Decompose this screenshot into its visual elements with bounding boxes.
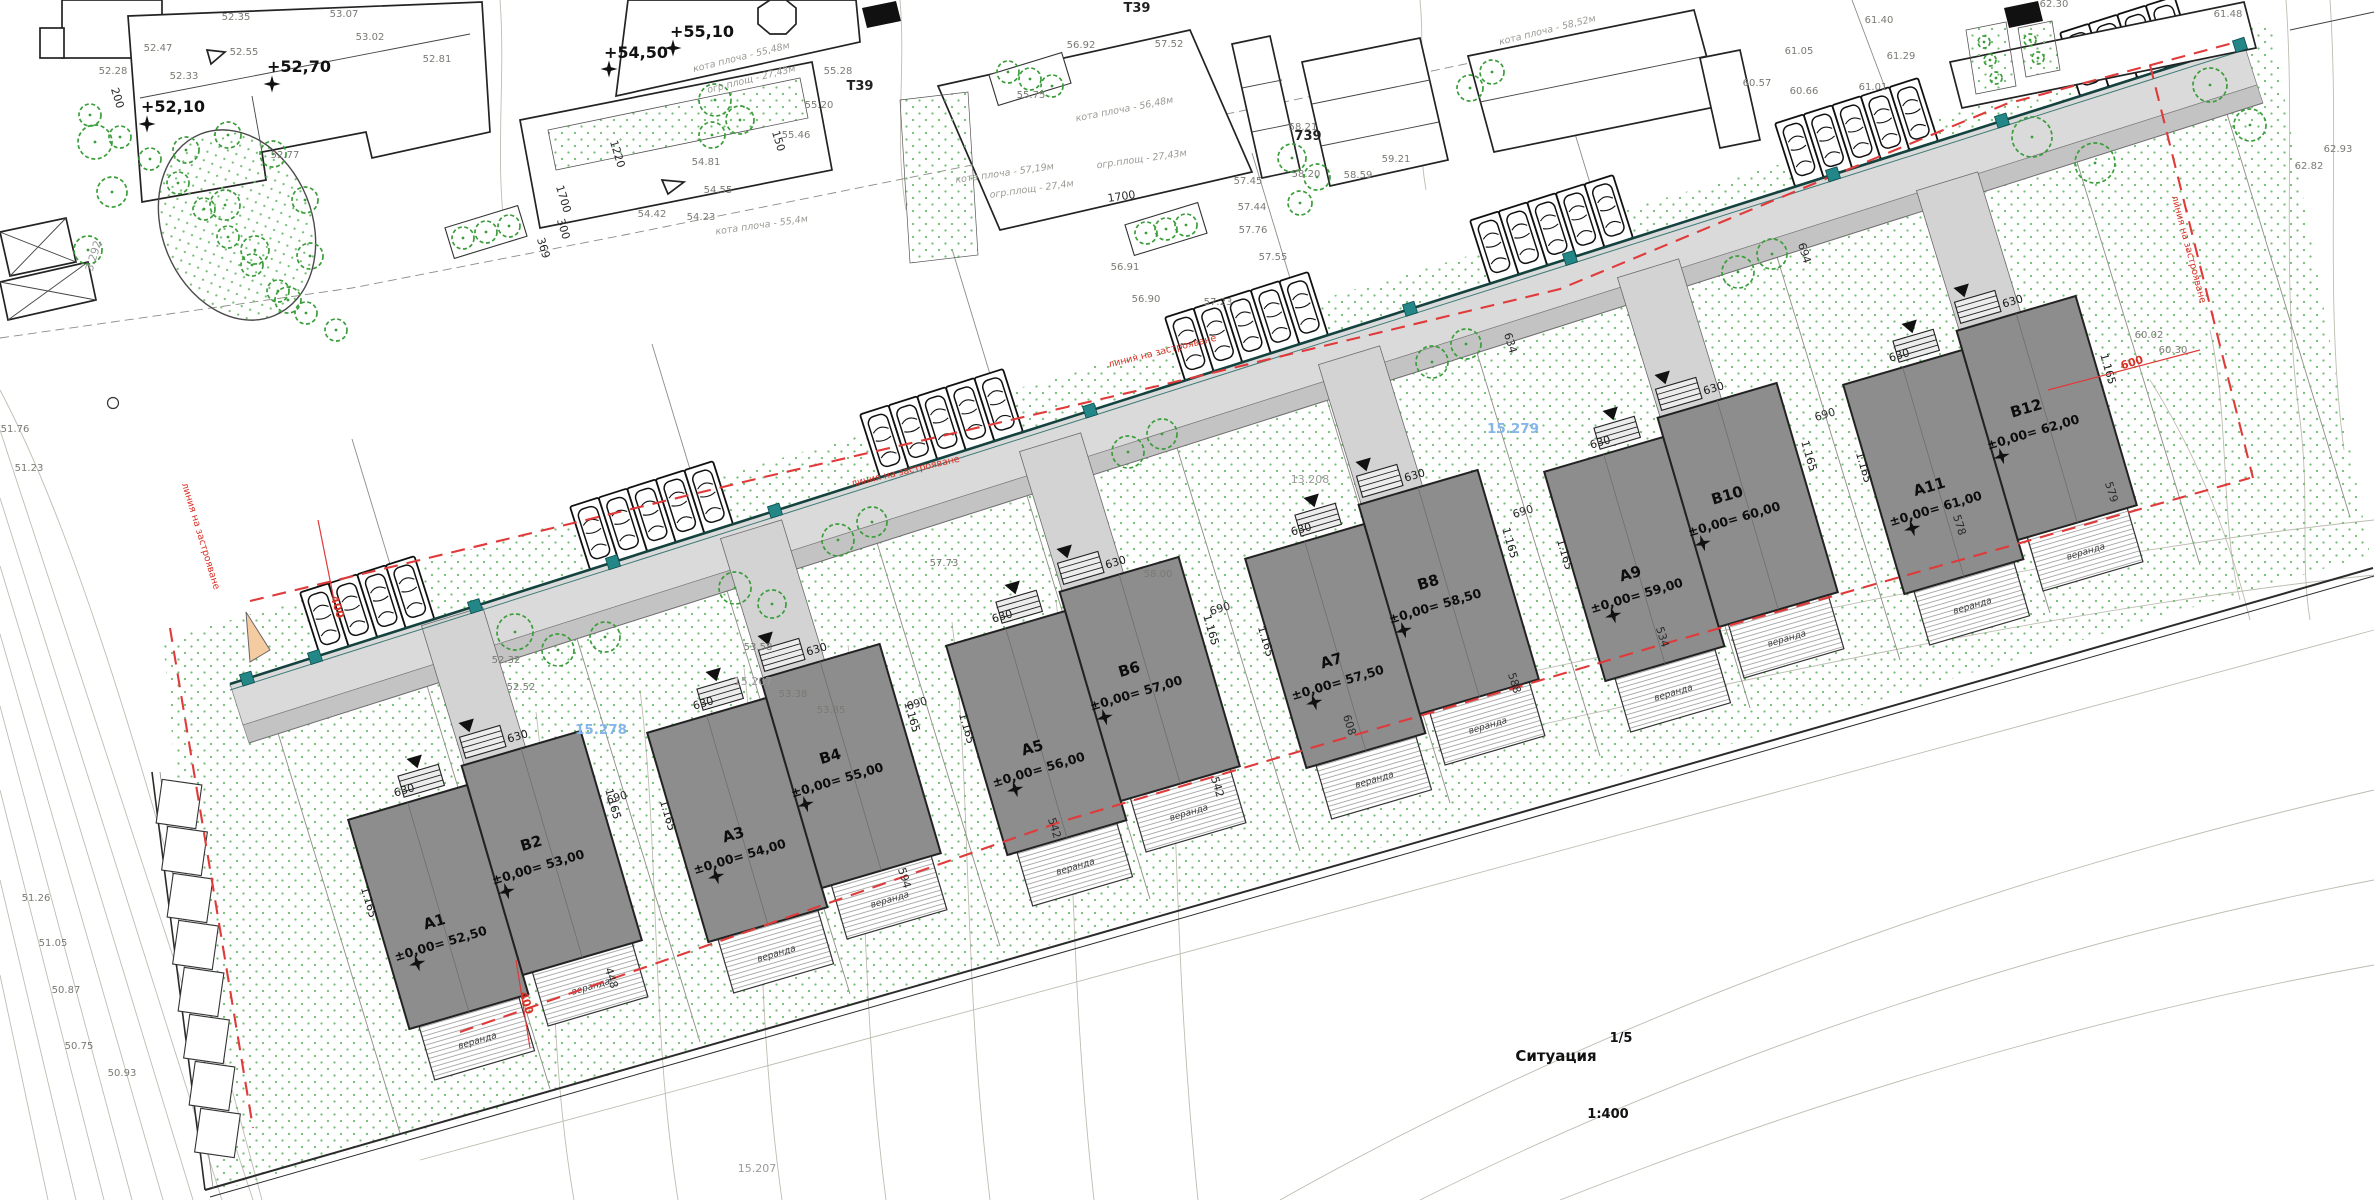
plan-label: 60.57 [1743,78,1772,89]
plan-label: Т39 [847,79,874,94]
plan-label: 54.55 [704,185,733,196]
tree-icon [295,302,317,324]
plan-label: +55,10 [670,22,734,41]
plan-label: 54.42 [638,209,667,220]
plan-label: 57.44 [1238,202,1267,213]
plan-label: 15.278 [575,722,627,738]
plan-label: 50.75 [65,1041,94,1052]
tree-icon [79,104,101,126]
benchmark-star-icon [601,61,618,78]
terrace-step [162,826,208,875]
plan-label: 52.32 [492,655,521,666]
plan-label: 52.55 [230,47,259,58]
plan-label: +52,10 [141,97,205,116]
plan-label: 53.58 [744,642,773,653]
plan-label: 61.05 [1785,46,1814,57]
plan-label: 62.93 [2324,144,2353,155]
plan-label: 62.30 [2040,0,2069,10]
plan-label: 3.292 [83,239,105,273]
plan-label: 59.21 [1382,154,1411,165]
tree-icon [1288,191,1312,215]
title-block: 1/5 Ситуация 1:400 [1515,1031,1632,1122]
plan-label: 51.23 [15,463,44,474]
plan-label: 61.48 [2214,9,2243,20]
drawing-scale: 1:400 [1587,1107,1628,1122]
plan-label: 55.46 [782,130,811,141]
plan-label: 57.23 [1204,297,1233,308]
plan-label: 52.33 [170,71,199,82]
site-plan-drawing: верандаверанда6306301.1651.165A1±0,00= 5… [0,0,2375,1200]
plan-label: 53.85 [817,705,846,716]
plan-label: 54.81 [692,157,721,168]
plan-label: 56.90 [1132,294,1161,305]
plan-label: 369 [534,236,553,260]
plan-label: 62.82 [2295,161,2324,172]
plan-label: 57.55 [1259,252,1288,263]
plan-label: +54,50 [604,43,668,62]
plan-label: 57.76 [1239,225,1268,236]
terrace-step [167,873,213,922]
plan-label: 55.75 [1017,90,1046,101]
plan-label: 52.47 [144,43,173,54]
plan-label: 52.28 [99,66,128,77]
plan-label: 13.208 [1291,473,1330,486]
plan-label: 200 [108,86,127,110]
plan-label: 58.00 [1144,569,1173,580]
plan-label: 52.77 [271,150,300,161]
plan-label: 61.01 [1859,82,1888,93]
terrace-step [189,1061,235,1110]
terrace-step [195,1108,241,1157]
terrace-step [156,779,202,828]
plan-label: 50.87 [52,985,81,996]
plan-label: 52.52 [507,682,536,693]
plan-label: 52.35 [222,12,251,23]
sheet-number: 1/5 [1610,1031,1633,1046]
plan-label: 1700 [1107,188,1137,205]
plan-label: 57.52 [1155,39,1184,50]
plan-label: 51.05 [39,938,68,949]
plan-label: 739 [1294,129,1321,144]
black-structure [862,1,901,28]
survey-point [108,398,119,409]
terrace-step [178,967,224,1016]
plan-label: 54.23 [687,212,716,223]
plan-label: 51.76 [1,424,30,435]
plan-label: 57.45 [1234,176,1263,187]
plan-label: 15.207 [738,1162,777,1175]
tree-icon [325,319,347,341]
plan-label: 60.30 [2159,345,2188,356]
plan-label: 58.59 [1344,170,1373,181]
tree-icon [78,125,112,159]
plan-label: 57.73 [930,558,959,569]
plan-label: 55.20 [805,100,834,111]
plan-label: 58.20 [1292,169,1321,180]
drawing-title: Ситуация [1515,1047,1596,1065]
plan-label: 61.29 [1887,51,1916,62]
plan-label: 56.91 [1111,262,1140,273]
terrace-step [173,920,219,969]
plan-label: 60.66 [1790,86,1819,97]
plan-label: 50.93 [108,1068,137,1079]
plan-label: линия на застрояване [179,482,222,592]
plan-label: 52.81 [423,54,452,65]
site-plan-page: верандаверанда6306301.1651.165A1±0,00= 5… [0,0,2375,1200]
plan-label: 53.02 [356,32,385,43]
plan-label: 15.207 [734,675,773,688]
plan-label: 53.07 [330,9,359,20]
plan-label: +52,70 [267,57,331,76]
plan-label: 61.40 [1865,15,1894,26]
plan-label: 51.26 [22,893,51,904]
plan-label: кота плоча - 55,4м [715,214,809,238]
plan-label: Т39 [1124,1,1151,16]
plan-label: 60.02 [2135,330,2164,341]
plan-label: 56.92 [1067,40,1096,51]
tree-icon [97,177,127,207]
plan-label: 55.28 [824,66,853,77]
plan-label: 53.38 [779,689,808,700]
terrace-step [184,1014,230,1063]
plan-label: 15.279 [1487,421,1539,437]
